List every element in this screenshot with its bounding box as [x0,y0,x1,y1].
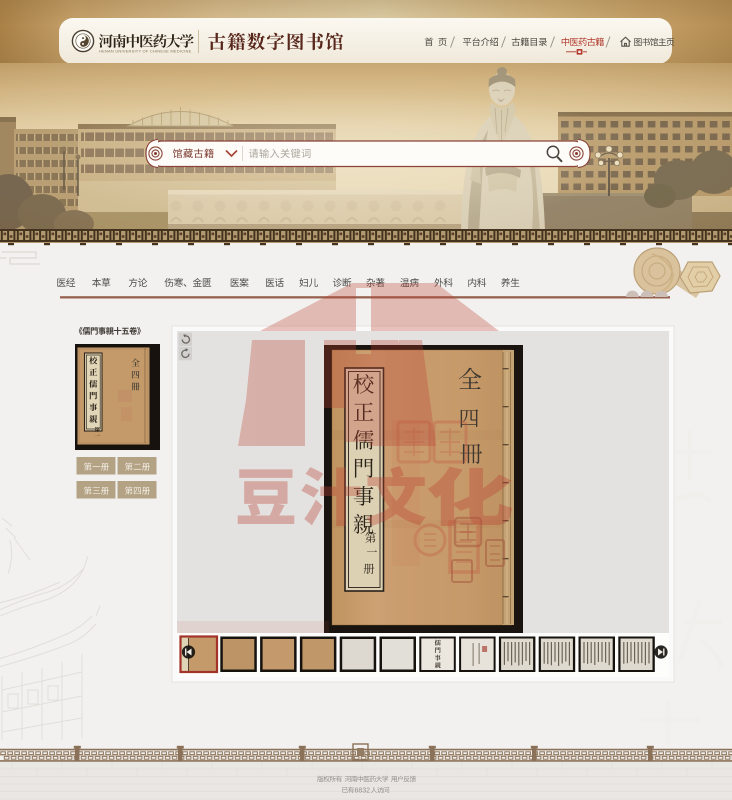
svg-text:6832: 6832 [355,788,371,795]
svg-text:HENAN UNIVERSITY OF CHINESE ME: HENAN UNIVERSITY OF CHINESE MEDICINE [99,49,192,54]
